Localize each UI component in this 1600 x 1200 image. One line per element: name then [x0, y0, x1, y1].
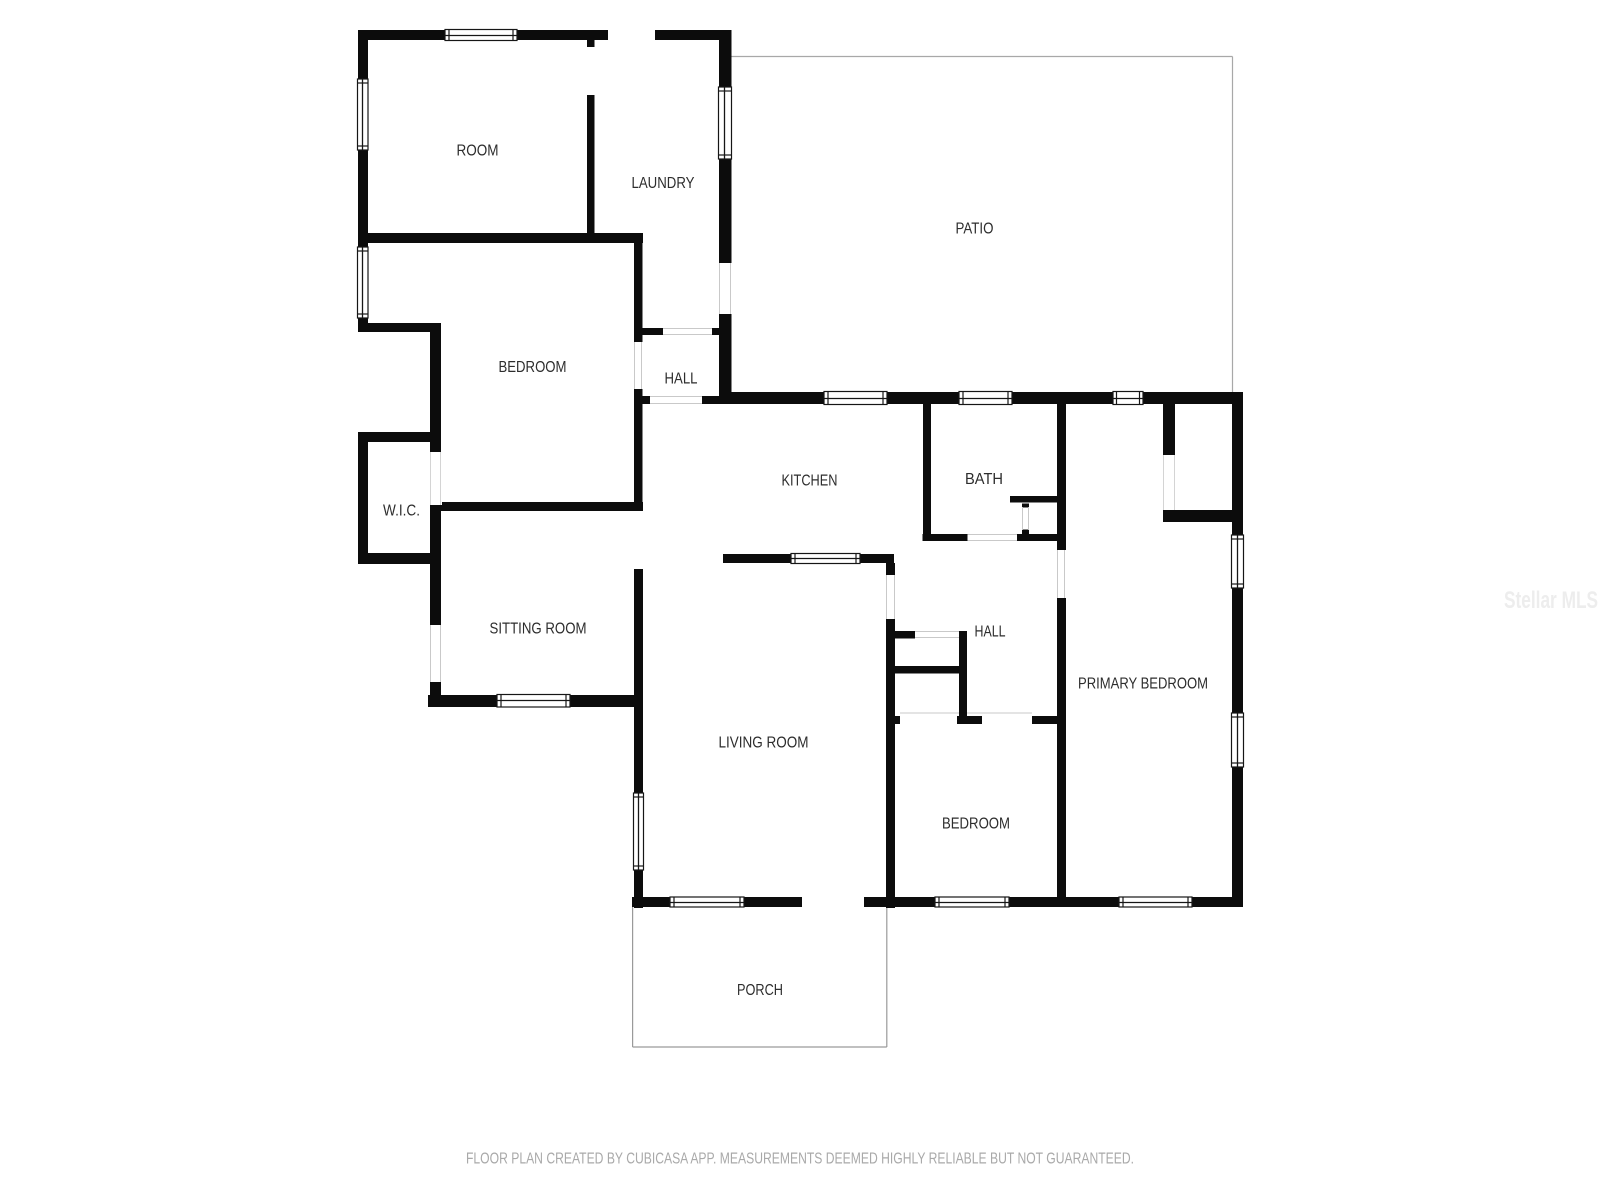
- svg-text:PRIMARY BEDROOM: PRIMARY BEDROOM: [1078, 676, 1208, 693]
- svg-text:PORCH: PORCH: [737, 982, 783, 999]
- svg-text:FLOOR PLAN CREATED BY CUBICASA: FLOOR PLAN CREATED BY CUBICASA APP. MEAS…: [466, 1151, 1134, 1168]
- svg-text:Stellar MLS: Stellar MLS: [1504, 587, 1598, 614]
- svg-text:LIVING ROOM: LIVING ROOM: [719, 735, 809, 752]
- svg-text:BEDROOM: BEDROOM: [499, 359, 567, 376]
- svg-text:BATH: BATH: [965, 471, 1003, 488]
- svg-text:KITCHEN: KITCHEN: [782, 473, 838, 490]
- svg-text:ROOM: ROOM: [457, 143, 499, 160]
- svg-text:SITTING ROOM: SITTING ROOM: [490, 621, 587, 638]
- svg-text:W.I.C.: W.I.C.: [383, 503, 420, 520]
- svg-text:BEDROOM: BEDROOM: [942, 816, 1010, 833]
- svg-text:HALL: HALL: [975, 624, 1006, 641]
- svg-text:PATIO: PATIO: [956, 221, 994, 238]
- svg-text:LAUNDRY: LAUNDRY: [632, 175, 695, 192]
- svg-text:HALL: HALL: [665, 371, 698, 388]
